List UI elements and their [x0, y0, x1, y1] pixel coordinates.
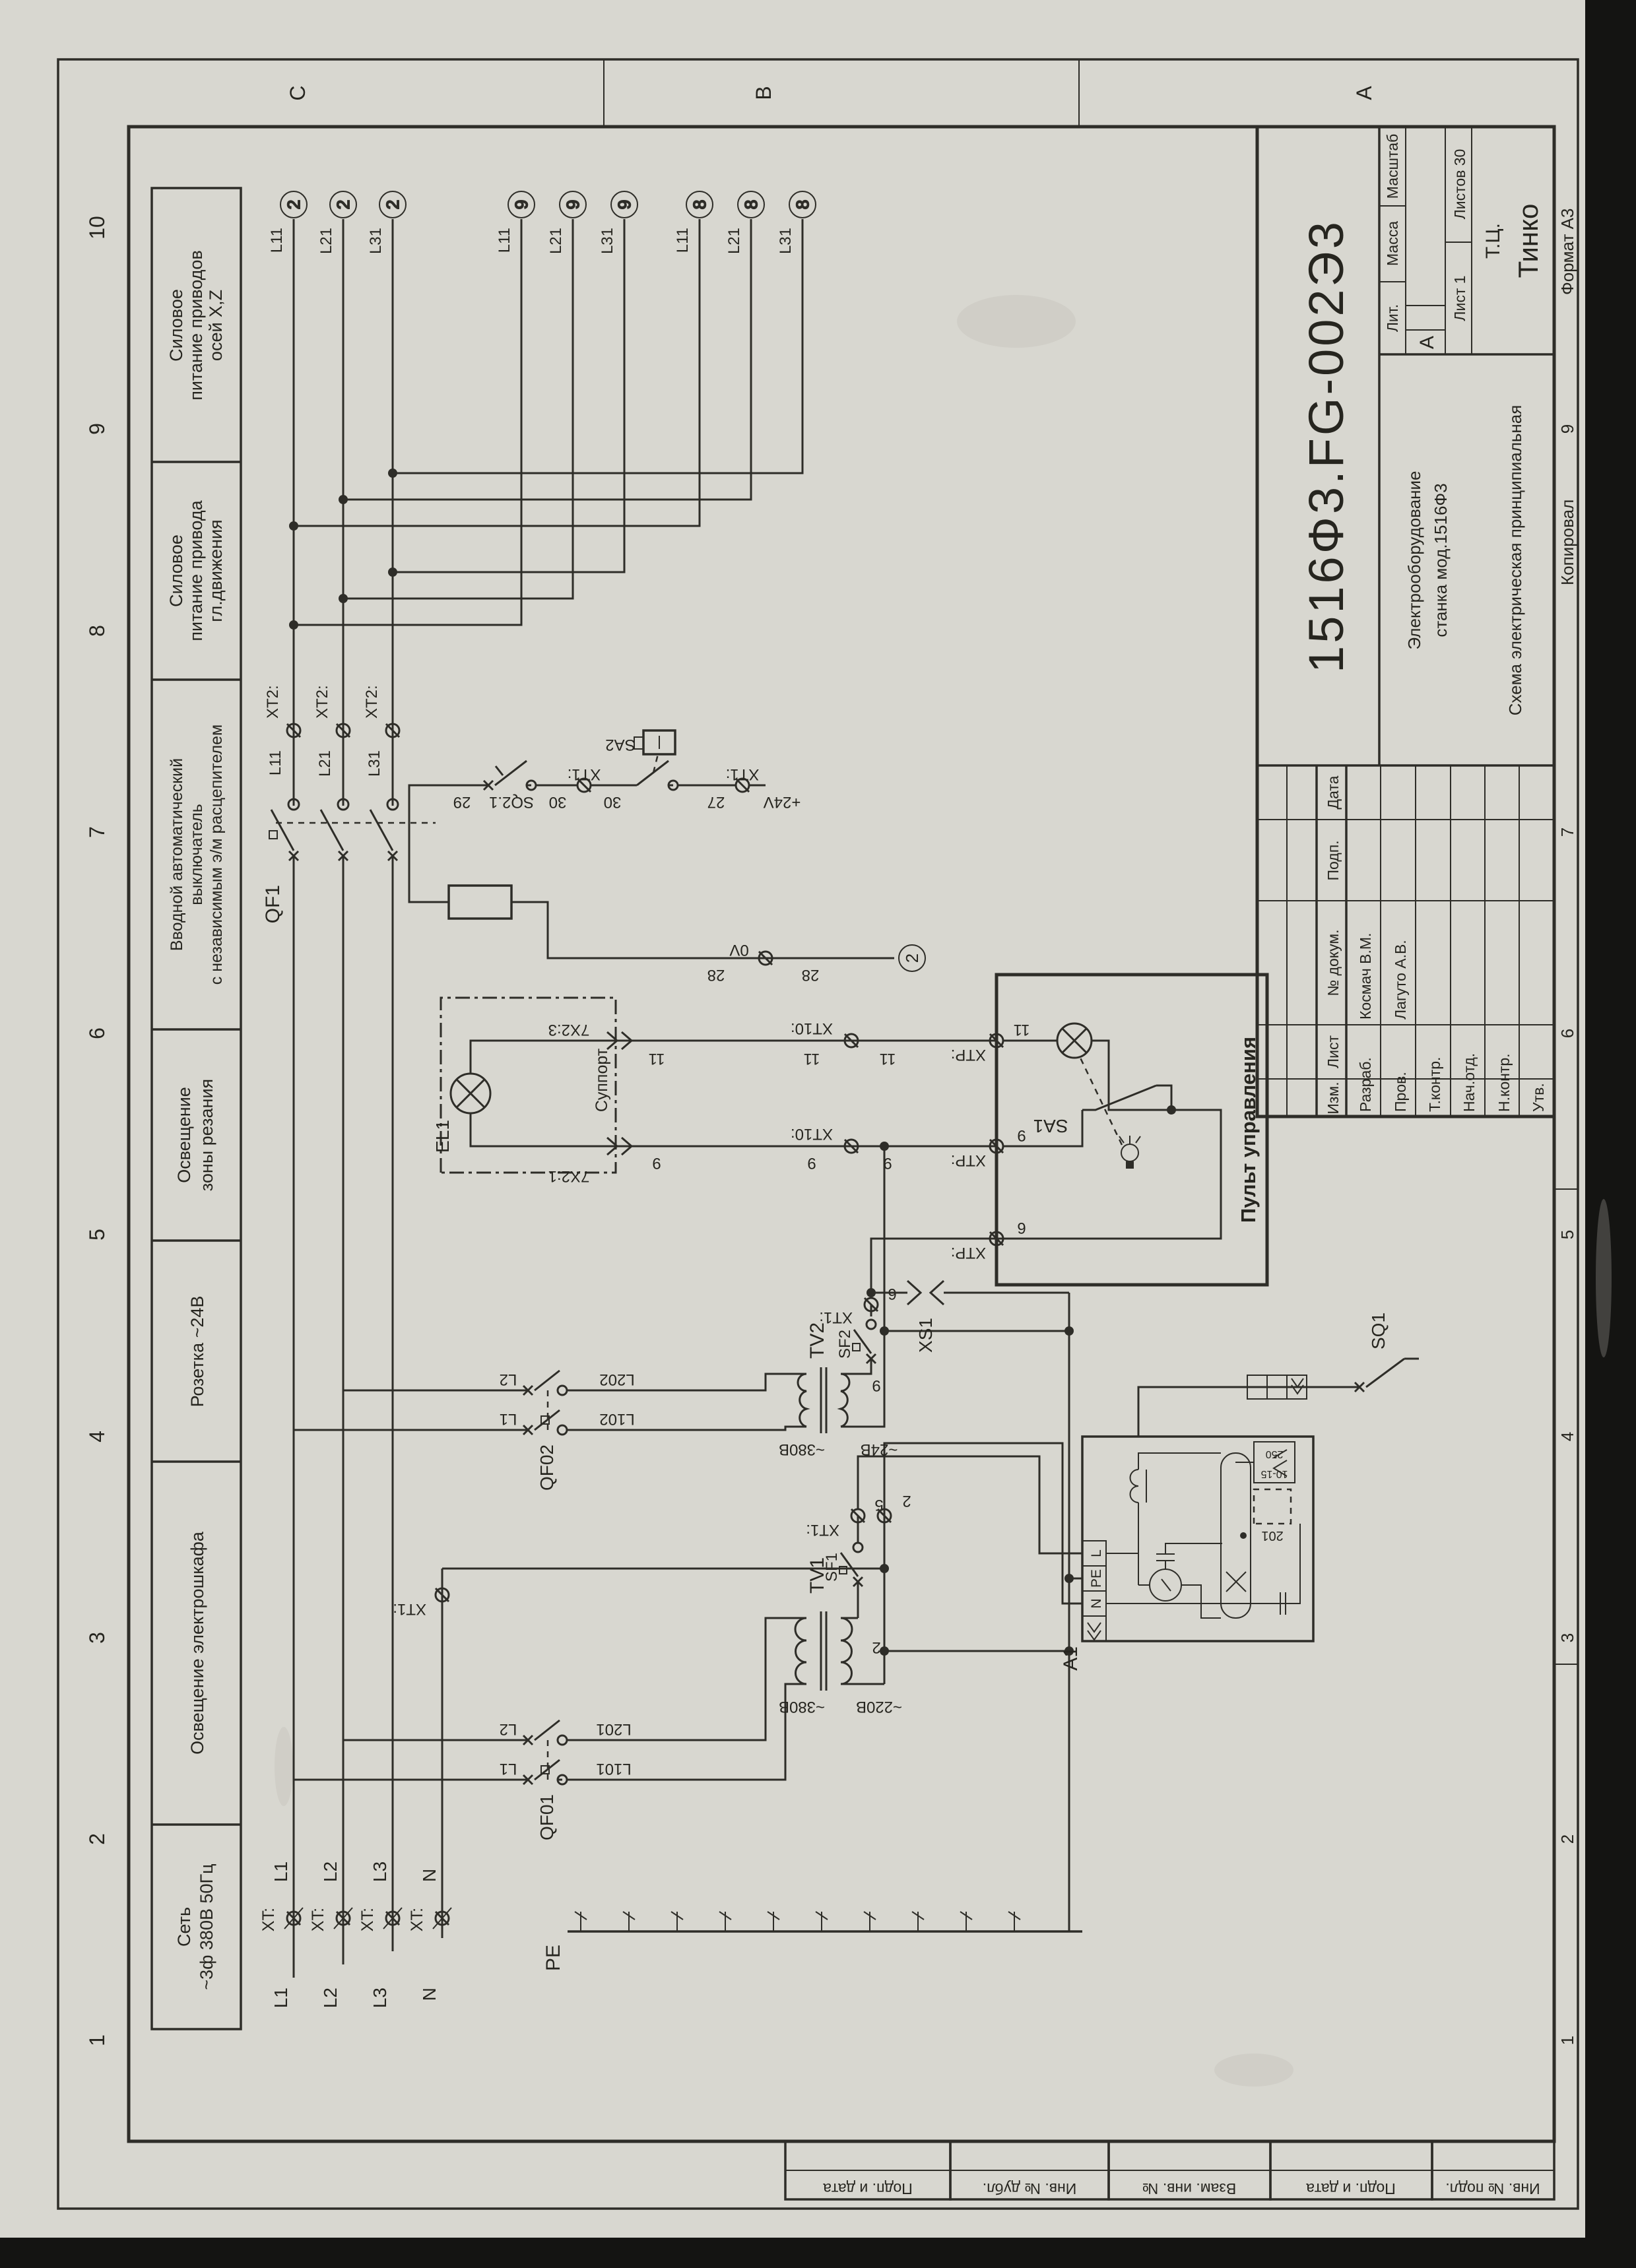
xtp-label: XTP:	[951, 1244, 986, 1262]
section-title: питание приводов	[186, 250, 206, 401]
wire-label: L102	[599, 1410, 634, 1428]
zone-letter: B	[752, 86, 775, 100]
wire-number: 9	[1017, 1126, 1026, 1144]
doc-name: станка мод.1516Ф3	[1431, 483, 1451, 637]
wire-label: L21	[725, 228, 743, 254]
connector-label: 7X2:3	[548, 1021, 590, 1039]
sf2-label: SF2	[836, 1330, 854, 1359]
org-line2: Тинко	[1513, 204, 1544, 278]
a1-terminal-n: N	[1089, 1598, 1104, 1608]
tv1-primary-voltage: ~380В	[779, 1698, 825, 1716]
wire-number: 11	[880, 1050, 896, 1068]
wire-label: L31	[777, 228, 795, 254]
section-title: Силовое	[166, 535, 186, 607]
mains-label-outer: L1	[271, 1988, 291, 2008]
sq21-contact	[484, 761, 536, 790]
zone-number: 9	[85, 423, 109, 435]
name-prov: Лагуто А.В.	[1392, 940, 1409, 1020]
section-title: Вводной автоматический	[168, 758, 186, 951]
lit-value: А	[1416, 336, 1438, 349]
voltage-label: +24V	[764, 793, 801, 811]
wire-number: 11	[1014, 1021, 1030, 1039]
margin-col-label: Инв. № подл.	[1445, 2180, 1540, 2197]
wire-number: 27	[707, 793, 725, 811]
xt10-label: XT10:	[791, 1125, 833, 1143]
row-nachotd: Нач.отд.	[1460, 1053, 1478, 1112]
zone-number: 10	[85, 216, 109, 240]
sa2-key-switch	[632, 730, 736, 790]
wire-number: 11	[804, 1050, 820, 1068]
mains-label-inner: L3	[370, 1862, 390, 1882]
mains-label-outer: N	[419, 1988, 440, 2001]
a1-terminal-l: L	[1089, 1549, 1104, 1557]
qf1-output-terminals: L11 XT2: L21 XT2: L31 XT2:	[264, 219, 399, 799]
pe-terminal-stubs	[575, 1912, 1020, 1931]
zone-number: 2	[1557, 1834, 1577, 1844]
zone-number: 9	[1557, 424, 1577, 434]
wire-number: 28	[802, 966, 820, 984]
wire-number: 9	[652, 1154, 661, 1172]
xt2-label: XT2:	[363, 685, 381, 719]
margin-col-label: Взам. инв. №	[1142, 2180, 1237, 2197]
socket-24v-circuit: QF02 L1 L102 L2 L202 TV2 ~380В ~24В 9	[294, 1146, 1074, 1491]
tv2-secondary-voltage: ~24В	[861, 1441, 898, 1458]
section-title: выключатель	[187, 804, 206, 905]
wire-number: 9	[872, 1377, 880, 1394]
zone-number: 1	[1557, 2036, 1577, 2045]
qf1-pole	[321, 790, 348, 860]
section-title: Розетка ~24В	[187, 1296, 207, 1408]
a1-label: A1	[1060, 1646, 1082, 1671]
doc-name: Схема электрическая принципиальная	[1505, 405, 1525, 716]
control-panel-box: Пульт управления XTP: XTP: XTP: 6 9 11	[951, 975, 1267, 1285]
wire-label: L31	[367, 228, 385, 254]
wire-label: L2	[500, 1371, 517, 1388]
section-title: питание привода	[186, 500, 206, 641]
zone-letter: A	[1352, 86, 1376, 100]
zone-number: 4	[1557, 1432, 1577, 1441]
wire-number: 9	[807, 1154, 816, 1172]
zone-number: 3	[1557, 1633, 1577, 1642]
cabinet-light-circuit: QF01 L1 L101 L2 L201 TV1 ~380В ~220В SF1…	[294, 1312, 1419, 1840]
xt-label: XT:	[358, 1908, 377, 1931]
wire-number: 29	[453, 793, 471, 811]
sheet-ref-number: 8	[793, 200, 812, 209]
margin-col-label: Инв. № дубл.	[983, 2180, 1076, 2197]
xtp-label: XTP:	[951, 1151, 986, 1169]
sheet-ref-number: 2	[284, 200, 304, 209]
wire-number: 9	[883, 1154, 892, 1172]
wire-label: L2	[500, 1720, 517, 1738]
pe-label: PE	[542, 1945, 564, 1971]
copied-label: Копировал	[1557, 500, 1577, 585]
sa1-switch: SA1	[997, 1023, 1221, 1239]
mains-wiring: L1 L2 L3 N XT: XT: XT: XT: L1 L2 L3 N	[259, 856, 451, 2008]
xs1-label: XS1	[915, 1318, 936, 1353]
qf02-breaker	[523, 1371, 567, 1435]
zone-number: 2	[85, 1833, 109, 1845]
connector-chevron-icon	[1088, 1623, 1101, 1640]
wire-label: L11	[267, 750, 284, 775]
tv1-secondary-voltage: ~220В	[856, 1698, 902, 1716]
wire-number: 28	[707, 966, 725, 984]
org-line1: Т.Ц.	[1482, 223, 1504, 259]
section-title: ~3ф 380В 50Гц	[197, 1863, 216, 1990]
xt1-label: XT1:	[568, 765, 601, 783]
mains-label-inner: L1	[271, 1862, 291, 1882]
power-branch-wiring: 2 2 2 9 9 9 8 8 8 L11 L21 L31 L11 L21 L3…	[268, 191, 816, 630]
a1-rating: 10-15	[1260, 1468, 1288, 1479]
a1-rating: 250	[1266, 1448, 1284, 1460]
col-data: Дата	[1325, 775, 1342, 809]
col-podp: Подп.	[1325, 840, 1342, 880]
scanned-schematic-sheet: 1 2 3 4 5 6 7 8 9 10 1 2 3 4 5 6 7 9 C B…	[0, 0, 1636, 2268]
sheet-ref-circle: 2	[899, 945, 925, 971]
sa1-label: SA1	[1033, 1116, 1068, 1136]
section-title: Освещение	[174, 1087, 194, 1183]
voltage-label: 0V	[729, 941, 748, 959]
row-utv: Утв.	[1530, 1083, 1547, 1112]
sheet-ref-number: 2	[383, 200, 403, 209]
sheet-ref-number: 9	[614, 200, 634, 209]
sq21-label: SQ2.1	[489, 793, 534, 811]
wire-number: 30	[604, 793, 622, 811]
row-razrab: Разраб.	[1357, 1057, 1374, 1112]
xs1-socket: XS1	[871, 1281, 1069, 1353]
xt-label: XT:	[408, 1908, 426, 1931]
mass-header: Масса	[1384, 221, 1401, 266]
xtp-label: XTP:	[951, 1046, 986, 1064]
wire-label: L31	[599, 228, 616, 254]
wire-number: 11	[649, 1050, 665, 1068]
wire-label: L202	[599, 1371, 634, 1388]
zone-number: 7	[1557, 827, 1577, 837]
zone-number: 4	[85, 1431, 109, 1442]
wire-number: 6	[1017, 1219, 1026, 1237]
a1-element-201: 201	[1261, 1528, 1283, 1543]
lit-header: Лит.	[1384, 304, 1401, 332]
col-docnum: № докум.	[1325, 929, 1342, 996]
scale-header: Масштаб	[1384, 134, 1401, 199]
zone-letter: C	[286, 85, 310, 100]
margin-col-label: Подп. и дата	[1306, 2180, 1396, 2197]
xt1-label: XT1:	[806, 1521, 839, 1539]
wire-label: L11	[496, 228, 513, 253]
mains-label-outer: L2	[320, 1988, 341, 2008]
col-izm: Изм.	[1325, 1082, 1342, 1114]
xt1-label: XT1:	[819, 1309, 853, 1326]
wire-label: L201	[596, 1720, 631, 1738]
title-block: Изм. Лист № докум. Подп. Дата Разраб. Пр…	[1257, 127, 1577, 1117]
support-label: Суппорт	[593, 1048, 611, 1112]
xt-label: XT:	[309, 1908, 327, 1931]
zone-number: 7	[85, 826, 109, 838]
zone-number: 1	[85, 2034, 109, 2046]
sheet-ref-number: 8	[690, 200, 709, 209]
xt-label: XT:	[259, 1908, 278, 1931]
sq1-label: SQ1	[1368, 1312, 1389, 1349]
cutting-zone-light-circuit: Суппорт EL1 7X2:1 7X2:3 9 11 9 11 9 11 X…	[432, 998, 997, 1185]
sheet-count: Листов 30	[1451, 149, 1468, 220]
xt10-terminal	[845, 1034, 858, 1153]
xt2-label: XT2:	[313, 685, 331, 719]
sheet-ref-circle: 2 2 2 9 9 9 8 8 8	[280, 191, 816, 218]
row-prov: Пров.	[1392, 1072, 1409, 1112]
drawing-sheet-landscape: 1 2 3 4 5 6 7 8 9 10 1 2 3 4 5 6 7 9 C B…	[0, 0, 1636, 2268]
sf1-breaker	[839, 1543, 863, 1586]
wire-number: 30	[549, 793, 567, 811]
col-list: Лист	[1325, 1035, 1342, 1068]
wire-label: L31	[366, 750, 383, 777]
qf1-pole	[370, 790, 398, 860]
mains-label-inner: N	[419, 1869, 440, 1882]
sf2-breaker	[853, 1320, 876, 1363]
wire-label: L11	[674, 228, 692, 253]
sheet-ref-number: 9	[511, 200, 531, 209]
section-title: зоны резания	[197, 1079, 216, 1191]
section-title: осей X,Z	[206, 290, 226, 361]
sheet-number: Лист 1	[1451, 275, 1468, 321]
handle-lamp-icon	[1119, 1136, 1140, 1169]
sq1-door-switch: SQ1	[1138, 1312, 1419, 1437]
sheet-ref-number: 2	[902, 954, 922, 963]
section-title: гл.движения	[206, 519, 226, 622]
el1-label: EL1	[432, 1120, 453, 1153]
wire-number: 2	[872, 1638, 880, 1656]
a1-luminaire: A1 N PE L 201	[1060, 1437, 1313, 1671]
sheet-ref-number: 8	[741, 200, 761, 209]
doc-number: 1516Ф3.FG-002Э3	[1299, 219, 1354, 673]
zone-number: 5	[85, 1229, 109, 1241]
section-header-band: Сеть ~3ф 380В 50Гц Освещение электрошкаф…	[152, 188, 241, 2029]
wire-label: L1	[500, 1410, 517, 1428]
qf01-label: QF01	[537, 1794, 557, 1840]
xt2-label: XT2:	[264, 685, 282, 719]
name-razrab: Космач В.М.	[1357, 933, 1374, 1020]
xt1-label: XT1:	[726, 765, 760, 783]
zone-number: 6	[1557, 1029, 1577, 1038]
wire-label: L11	[268, 228, 286, 253]
wire-number: 2	[902, 1492, 911, 1510]
pe-bus: PE	[542, 1293, 1082, 1971]
qf01-breaker	[523, 1720, 567, 1784]
qf02-label: QF02	[537, 1444, 557, 1491]
zone-number: 8	[85, 625, 109, 637]
release-coil-control-chain: 29 SQ2.1 30 XT1: 30 SA2 27 XT1: +24V 28 …	[409, 730, 925, 984]
sheet-ref-number: 9	[563, 200, 583, 209]
tv2-primary-voltage: ~380В	[779, 1441, 825, 1458]
connector-label: 7X2:1	[548, 1167, 590, 1185]
section-title: Сеть	[174, 1907, 194, 1947]
wire-label: L21	[547, 228, 565, 254]
xt10-label: XT10:	[791, 1020, 833, 1037]
sf1-label: SF1	[823, 1553, 841, 1582]
tv2-transformer	[798, 1367, 858, 1433]
qf1-label: QF1	[262, 885, 284, 923]
wire-label: L21	[316, 750, 334, 777]
tv1-transformer	[795, 1611, 858, 1691]
doc-name: Электрооборудование	[1404, 470, 1424, 649]
zone-number: 3	[85, 1632, 109, 1644]
wire-label: L1	[500, 1760, 517, 1778]
section-title: Освещение электрошкафа	[187, 1531, 207, 1755]
format-label: Формат А3	[1557, 209, 1577, 295]
release-coil	[449, 886, 511, 919]
tv2-label: TV2	[806, 1322, 828, 1359]
wire-label: L21	[317, 228, 335, 254]
mains-label-outer: L3	[370, 1988, 390, 2008]
sheet-ref-number: 2	[333, 200, 353, 209]
row-nkontr: Н.контр.	[1495, 1053, 1513, 1112]
section-title: Силовое	[166, 289, 186, 362]
mains-label-inner: L2	[320, 1862, 341, 1882]
sa2-label: SA2	[605, 736, 635, 754]
margin-column-strip: Подп. и дата Инв. № дубл. Взам. инв. № П…	[785, 2141, 1554, 2199]
row-tkontr: Т.контр.	[1426, 1057, 1443, 1112]
margin-col-label: Подп. и дата	[823, 2180, 913, 2197]
wire-label: L101	[596, 1760, 631, 1778]
a1-terminal-pe: PE	[1089, 1569, 1104, 1588]
zone-number: 6	[85, 1027, 109, 1039]
xt1-label: XT1:	[393, 1600, 426, 1618]
section-title: с независимым э/м расцепителем	[207, 725, 226, 985]
zone-number: 5	[1557, 1230, 1577, 1239]
qf1-pole	[269, 790, 299, 860]
